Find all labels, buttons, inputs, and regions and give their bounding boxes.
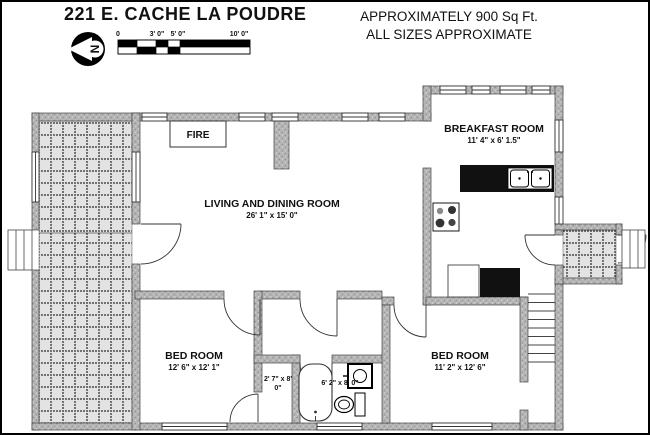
window xyxy=(342,113,368,121)
window xyxy=(532,86,550,94)
kitchen-counter-2 xyxy=(480,268,520,297)
wall-segment xyxy=(520,297,528,382)
wall-segment xyxy=(426,297,528,305)
wall-segment xyxy=(555,230,563,235)
wall-segment xyxy=(423,168,431,305)
window xyxy=(162,423,227,430)
porch-inner-door xyxy=(525,235,555,265)
bathtub-icon xyxy=(299,364,332,421)
window xyxy=(472,86,490,94)
breakfast-room-label: BREAKFAST ROOM xyxy=(444,123,544,135)
front-steps xyxy=(8,230,32,270)
wall-segment xyxy=(520,410,528,430)
stairs-icon xyxy=(528,294,555,362)
floor-plan-drawing: N 0 3' 0" 5' 0" 10' 0" xyxy=(2,2,648,433)
wall-segment xyxy=(555,224,622,230)
wall-segment xyxy=(555,278,622,284)
wall-segment xyxy=(135,291,224,299)
scale-tick-0: 0 xyxy=(116,31,120,38)
bedroom2-dims: 11' 2" x 12' 6" xyxy=(435,363,486,372)
wall-segment xyxy=(616,265,622,284)
floor-plan-page: 221 E. CACHE LA POUDRE APPROXIMATELY 900… xyxy=(0,0,650,435)
rear-porch-floor xyxy=(563,230,616,278)
rear-steps xyxy=(622,230,645,268)
wall-segment xyxy=(260,291,300,299)
wall-segment xyxy=(555,265,563,284)
wall-segment xyxy=(382,305,390,423)
toilet-icon xyxy=(335,393,366,416)
window xyxy=(500,86,526,94)
north-arrow-icon: N xyxy=(68,32,105,66)
wall-segment xyxy=(616,224,622,235)
bedroom1-label: BED ROOM xyxy=(165,350,223,362)
compass-letter: N xyxy=(88,45,102,54)
wall-segment xyxy=(382,297,394,305)
patio-door xyxy=(141,224,181,264)
scale-tick-10ft: 10' 0" xyxy=(230,31,249,38)
window xyxy=(555,197,563,224)
wall-segment xyxy=(555,284,563,430)
wall-segment xyxy=(337,291,382,299)
window xyxy=(239,113,265,121)
wall-segment xyxy=(254,291,262,392)
wall-segment xyxy=(132,264,140,430)
window xyxy=(317,423,362,430)
window xyxy=(555,120,563,152)
living-room-label: LIVING AND DINING ROOM xyxy=(204,198,340,210)
window xyxy=(32,152,39,202)
fireplace-label: FIRE xyxy=(187,130,210,141)
bedroom1-dims: 12' 6" x 12' 1" xyxy=(168,363,220,372)
scale-tick-3ft: 3' 0" xyxy=(150,31,165,38)
window xyxy=(440,86,466,94)
patio-floor xyxy=(39,121,132,423)
kitchen-sink-icon xyxy=(508,168,552,189)
wall-segment xyxy=(332,355,388,363)
chimney-stub xyxy=(274,121,289,169)
wall-segment xyxy=(32,270,39,430)
fireplace: FIRE xyxy=(170,121,226,147)
room-labels: LIVING AND DINING ROOM 26' 1" x 15' 0" B… xyxy=(165,123,544,392)
window xyxy=(379,113,405,121)
window xyxy=(432,423,492,430)
wall-segment xyxy=(254,355,300,363)
window xyxy=(142,113,167,121)
bedroom2-label: BED ROOM xyxy=(431,350,489,362)
breakfast-room-dims: 11' 4" x 6' 1.5" xyxy=(467,136,520,145)
window xyxy=(272,113,298,121)
living-room-dims: 26' 1" x 15' 0" xyxy=(246,211,298,220)
closet-door xyxy=(230,394,258,422)
window xyxy=(132,152,140,202)
bedroom2-door xyxy=(394,305,426,337)
stove-icon xyxy=(433,203,459,231)
scale-bar: 0 3' 0" 5' 0" 10' 0" xyxy=(116,31,250,54)
wall-segment xyxy=(32,113,139,121)
closet-dims-line2: 0" xyxy=(274,385,281,392)
closet-dims-line1: 2' 7" x 8' xyxy=(264,376,292,383)
bathroom-dims: 6' 2" x 8' 0" xyxy=(321,380,358,387)
wall-segment xyxy=(423,86,431,121)
hall-door xyxy=(300,299,337,336)
refrigerator-icon xyxy=(448,265,479,297)
scale-tick-5ft: 5' 0" xyxy=(171,31,186,38)
